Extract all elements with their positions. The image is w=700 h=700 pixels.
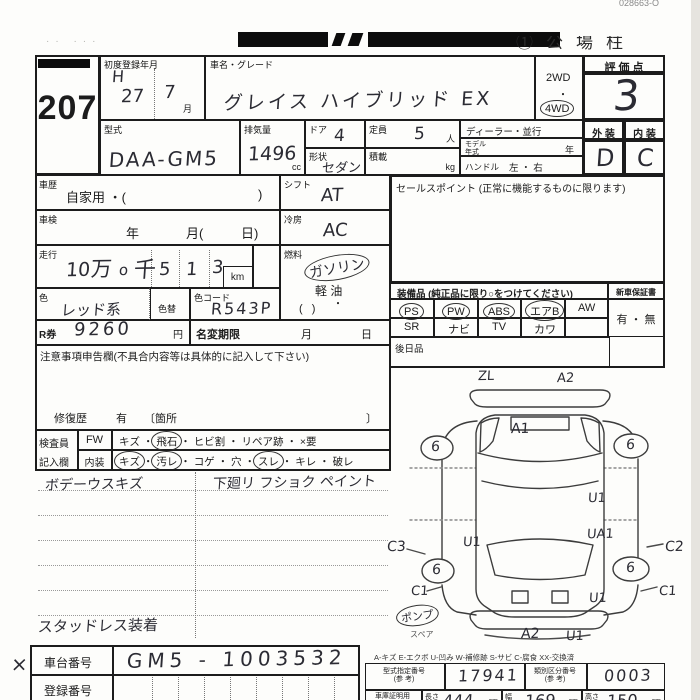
score-value-cell: 3 <box>583 73 665 120</box>
note-studless: スタッドレス装着 <box>37 614 159 637</box>
ref-length-label: 長さ <box>425 692 439 700</box>
diagram-mark-zl: ZL <box>477 369 494 384</box>
ref-model-designation-label-cell: 型式指定番号(参 考) <box>365 663 445 690</box>
diagram-mark-u1-right: U1 <box>587 491 606 506</box>
diagram-mark-a2-rear: A2 <box>556 371 574 386</box>
equip-abs: ABS <box>488 306 510 318</box>
header-redaction-mark <box>348 33 364 46</box>
ref-height-cell: 高さ 150 cm <box>582 690 665 700</box>
equip-airbag-cell: エアB <box>521 299 565 318</box>
notes-box: 注意事項申告欄(不具合内容等は具体的に記入して下さい) 修復歴 有 〔箇所 〕 <box>35 345 390 430</box>
fuel-dot: ・ <box>333 295 343 310</box>
fuel-gasoline-circled: ガソリン <box>308 253 367 282</box>
diagram-wheel-rear-right: 6 <box>625 437 635 453</box>
chassis-value: GM5 - 1003532 <box>126 645 347 673</box>
registration-number-label: 登録番号 <box>44 682 92 699</box>
header-stamp-clip: ①公場柱 <box>516 36 656 50</box>
dealer-cell: ディーラー・並行 <box>460 120 583 138</box>
interior-value-cell: C <box>624 140 665 175</box>
equip-abs-cell: ABS <box>478 299 521 318</box>
header-redaction-mark <box>332 33 346 46</box>
dealer-label: ディーラー・並行 <box>466 124 541 138</box>
diagram-mark-u1-front: U1 <box>565 629 584 644</box>
sales-point-box: セールスポイント (正常に機能するものに限ります) <box>390 175 665 283</box>
aircon-label: 冷房 <box>284 213 302 226</box>
capacity-cell: 定員 5 人 <box>365 120 460 148</box>
interior-label: 内 装 <box>626 125 663 140</box>
inspector-naiso: 内装 <box>79 454 110 469</box>
diagram-spare-label: スペア <box>410 629 433 640</box>
aircon-value: AC <box>322 220 348 241</box>
rename-month: 月 <box>301 326 312 342</box>
color-change-label: 色替 <box>158 302 176 315</box>
repair-part-close: 〕 <box>366 410 377 426</box>
dmg-tobiishi-circled: 飛石 <box>156 434 177 449</box>
dmg-hibiware: ヒビ割 <box>194 436 226 448</box>
mileage-v3: o <box>118 261 128 279</box>
diagram-mark-u1-front-right: U1 <box>588 591 607 606</box>
color-label: 色 <box>39 291 48 304</box>
equip-navi-cell: ナビ <box>434 318 478 337</box>
equip-sr: SR <box>404 321 419 333</box>
equip-empty-cell <box>565 318 608 337</box>
damage-diagram: ZL A2 A1 6 6 U1 U1 UA1 C3 C2 6 6 C1 C1 U… <box>385 363 695 663</box>
exterior-value: D <box>595 144 615 172</box>
fuel-cell: 燃料 ガソリン 軽 油 ・ ( ) <box>280 245 390 320</box>
lot-number: 207 <box>37 89 98 128</box>
ref-label1b: (参 考) <box>366 676 442 684</box>
month-unit: 月 <box>183 102 192 115</box>
model-code-value: DAA-GM5 <box>108 146 220 172</box>
shape-cell: 形状 セダン <box>305 148 365 175</box>
first-registration-cell: 初度登録年月 H 27 7 月 <box>100 55 205 120</box>
ref-label1a: 型式指定番号 <box>366 668 442 676</box>
ref-model-designation-value: 17941 <box>457 665 519 685</box>
sheet-serial-code: 028663-O <box>619 0 659 8</box>
lot-redaction-bar <box>38 59 90 68</box>
equip-leather: カワ <box>534 321 556 337</box>
note-underbody: 下廻リ フショク ペイント <box>212 471 377 494</box>
aircon-cell: 冷房 AC <box>280 210 390 245</box>
chassis-table: 車台番号 GM5 - 1003532 登録番号 <box>30 645 360 700</box>
handle-value: 左 ・ 右 <box>509 160 543 174</box>
drive-type-cell: 2WD ・ 4WD <box>535 55 583 120</box>
inspector-naiso-cell: 内装 <box>78 450 112 470</box>
color-value: レッド系 <box>60 298 122 320</box>
int-yabure: 破レ <box>333 456 354 468</box>
diagram-mark-ua1: UA1 <box>586 527 614 542</box>
shift-value: AT <box>320 185 343 206</box>
first-registration-era: H <box>111 67 124 86</box>
score-value: 3 <box>611 71 641 120</box>
color-code-value: R543P <box>210 298 273 318</box>
interior-header-cell: 内 装 <box>624 120 665 140</box>
later-items-label: 後日品 <box>395 341 424 355</box>
ref-height-label: 高さ <box>585 692 599 700</box>
ref-width-value: 169 <box>524 691 556 700</box>
history-label: 車歴 <box>39 178 57 191</box>
displacement-label: 排気量 <box>244 123 271 136</box>
exterior-header-cell: 外 装 <box>583 120 624 140</box>
repair-part-open: 〔箇所 <box>144 410 177 426</box>
equip-airbag: エアB <box>530 303 559 319</box>
shift-cell: シフト AT <box>280 175 390 210</box>
mileage-cell: 走行 10 万 o 千 5 1 3 km <box>35 245 280 288</box>
rticket-value: 9260 <box>73 318 132 340</box>
load-cell: 積載 kg <box>365 148 460 175</box>
repair-history-label: 修復歴 <box>54 410 87 426</box>
warranty-value: 有 ・ 無 <box>609 311 663 327</box>
auction-sheet: 028663-O ·· ··· ①公場柱 207 初度登録年月 H 27 7 月… <box>0 0 700 700</box>
ref-model-designation-value-cell: 17941 <box>445 663 525 690</box>
diagram-mark-c2: C2 <box>664 539 684 555</box>
color-cell: 色 レッド系 <box>35 288 150 320</box>
exterior-damage-row: キズ ・ 飛石 ・ ヒビ割 ・ リペア跡 ・ ×要 <box>112 430 390 450</box>
color-code-cell: 色コード R543P <box>190 288 280 320</box>
model-year-cell: モデル 年式 年 <box>460 138 583 156</box>
equip-aw: AW <box>578 302 595 314</box>
drive-4wd-circled: 4WD <box>545 103 569 115</box>
ref-class-value: 0003 <box>603 666 653 686</box>
ref-height-value: 150 <box>606 691 638 700</box>
mileage-v2: 万 <box>90 253 113 283</box>
note-body-scratch: ボデーウスキズ <box>44 473 144 495</box>
diagram-mark-a2-front: A2 <box>520 626 540 642</box>
int-kizu-circled: キズ <box>119 454 140 469</box>
diagram-mark-u1-left: U1 <box>462 535 481 550</box>
table-divider-vertical <box>389 175 391 470</box>
equipment-header-cell: 装備品 (純正品に限り○をつけてください) <box>390 283 608 299</box>
equip-ps: PS <box>404 306 419 318</box>
interior-value: C <box>636 144 655 172</box>
inspector-label-cell: 検査員 記入欄 <box>35 430 78 470</box>
equip-leather-cell: カワ <box>521 318 565 337</box>
rticket-label: R券 <box>39 326 56 341</box>
dmg-repair: リペア跡 <box>242 436 284 448</box>
table-outer-left <box>35 55 37 470</box>
ref-label2b: (参 考) <box>526 676 584 684</box>
inspector-label2: 記入欄 <box>39 454 69 469</box>
warranty-header-cell: 新車保証書 <box>608 283 665 299</box>
mileage-digit2: 1 <box>185 259 198 280</box>
rticket-unit: 円 <box>173 326 183 341</box>
mileage-v4: 千 <box>133 252 157 284</box>
warranty-value-cell: 有 ・ 無 <box>608 299 665 337</box>
dmg-x: ×要 <box>300 436 317 448</box>
capacity-value: 5 <box>413 124 425 144</box>
first-registration-year: 27 <box>120 86 144 107</box>
diagram-mark-c1-right: C1 <box>658 584 676 599</box>
shift-label: シフト <box>284 178 311 191</box>
equip-pw-cell: PW <box>434 299 478 318</box>
x-mark: × <box>10 652 28 676</box>
drive-2wd: 2WD <box>546 72 570 84</box>
inspector-fw-cell: FW <box>78 430 112 450</box>
capacity-label: 定員 <box>369 123 387 136</box>
inspection-cell: 車検 年 月( 日) <box>35 210 280 245</box>
equipment-label: 装備品 (純正品に限り○をつけてください) <box>397 286 573 300</box>
int-ana: 穴 <box>231 456 242 468</box>
inspection-day: 日) <box>241 223 258 242</box>
mileage-label: 走行 <box>39 248 57 261</box>
equip-tv: TV <box>492 321 506 333</box>
displacement-cell: 排気量 1496 cc <box>240 120 305 175</box>
ref-length-value: 444 <box>442 691 474 700</box>
history-cell: 車歴 自家用 ・( ) <box>35 175 280 210</box>
car-name-label: 車名・グレード <box>210 58 273 71</box>
ref-class-label-cell: 類別区分番号(参 考) <box>525 663 587 690</box>
ref-label3a: 車庫証明用 <box>366 693 419 700</box>
int-kire: キレ <box>295 456 316 468</box>
header-stamp-text: ①公場柱 <box>516 36 656 50</box>
displacement-value: 1496 <box>247 143 297 166</box>
ref-class-value-cell: 0003 <box>587 663 665 690</box>
exterior-label: 外 装 <box>585 125 622 140</box>
ref-label2a: 類別区分番号 <box>526 668 584 676</box>
rticket-cell: R券 9260 円 <box>35 320 190 345</box>
inspection-month: 月( <box>186 223 203 242</box>
int-yogore-circled: 汚レ <box>156 454 177 469</box>
shape-value: セダン <box>321 157 361 177</box>
history-paren-close: ) <box>258 187 262 202</box>
table-bottom-left <box>35 469 391 471</box>
int-koge: コゲ <box>194 456 215 468</box>
table-outer-right <box>663 55 665 367</box>
inspection-year: 年 <box>126 223 139 242</box>
equip-aw-cell: AW <box>565 299 608 318</box>
doors-label: ドア <box>309 123 327 136</box>
warranty-label: 新車保証書 <box>609 287 663 298</box>
mileage-v1: 10 <box>65 259 91 281</box>
mileage-digit1: 5 <box>158 259 171 280</box>
diagram-wheel-front-right: 6 <box>625 560 635 576</box>
int-sure-circled: スレ <box>258 454 279 469</box>
model-code-cell: 型式 DAA-GM5 <box>100 120 240 175</box>
model-code-label: 型式 <box>104 123 122 136</box>
notes-label: 注意事項申告欄(不具合内容等は具体的に記入して下さい) <box>40 349 309 364</box>
rename-day: 日 <box>361 326 372 342</box>
first-registration-month: 7 <box>163 82 176 103</box>
handle-cell: ハンドル 左 ・ 右 <box>460 156 583 175</box>
lot-number-cell: 207 <box>35 55 100 175</box>
equip-ps-cell: PS <box>390 299 434 318</box>
sales-point-label: セールスポイント (正常に機能するものに限ります) <box>396 180 625 195</box>
mileage-unit: km <box>224 272 252 283</box>
header-faint-marks: ·· ··· <box>46 36 101 47</box>
header-redaction-bar <box>238 32 328 47</box>
load-unit: kg <box>445 162 455 172</box>
inspector-fw: FW <box>79 434 110 446</box>
handle-label: ハンドル <box>465 161 499 173</box>
diagram-wheel-front-left: 6 <box>431 562 441 578</box>
diagram-mark-a1: A1 <box>510 421 530 437</box>
ref-width-label: 幅 <box>505 692 512 700</box>
diagram-mark-c1-left: C1 <box>410 584 428 599</box>
doors-value: 4 <box>333 126 345 146</box>
drive-separator: ・ <box>558 86 568 101</box>
inspection-label: 車検 <box>39 213 57 226</box>
right-column-bottom <box>389 366 665 368</box>
fuel-paren: ( ) <box>299 303 318 315</box>
doors-cell: ドア 4 <box>305 120 365 148</box>
rename-label: 名変期限 <box>196 326 240 342</box>
load-label: 積載 <box>369 150 387 163</box>
inspector-label1: 検査員 <box>39 435 69 450</box>
ref-width-cell: 幅 169 cm <box>502 690 582 700</box>
repair-history-yes: 有 <box>116 410 127 426</box>
interior-damage-row: キズ ・ 汚レ ・ コゲ ・ 穴 ・ スレ ・ キレ ・ 破レ <box>112 450 390 470</box>
car-name-cell: 車名・グレード グレイス ハイブリッド EX <box>205 55 535 120</box>
history-value: 自家用 ・( <box>66 187 126 206</box>
ref-length-cell: 長さ 444 cm <box>422 690 502 700</box>
displacement-unit: cc <box>292 162 301 172</box>
equip-tv-cell: TV <box>478 318 521 337</box>
exterior-value-cell: D <box>583 140 624 175</box>
rename-deadline-cell: 名変期限 月 日 <box>190 320 390 345</box>
fuel-label: 燃料 <box>284 248 302 261</box>
capacity-unit: 人 <box>446 132 455 145</box>
damage-code-legend: A-キズ E-エクボ U-凹み W-補修跡 S-サビ C-腐食 XX-交換済 <box>374 652 574 663</box>
diagram-mark-c3: C3 <box>386 539 406 555</box>
car-name-value: グレイス ハイブリッド EX <box>223 84 493 116</box>
chassis-label: 車台番号 <box>44 654 92 671</box>
diagram-wheel-rear-left: 6 <box>430 439 440 455</box>
dmg-kizu: キズ <box>119 436 140 448</box>
equip-navi: ナビ <box>448 321 470 337</box>
equip-pw: PW <box>447 306 465 318</box>
model-year-unit: 年 <box>565 143 574 156</box>
color-change-cell: 色替 <box>150 288 190 320</box>
table-outer-top <box>35 55 665 57</box>
ref-garage-label-cell: 車庫証明用(参 考) <box>365 690 422 700</box>
equip-sr-cell: SR <box>390 318 434 337</box>
